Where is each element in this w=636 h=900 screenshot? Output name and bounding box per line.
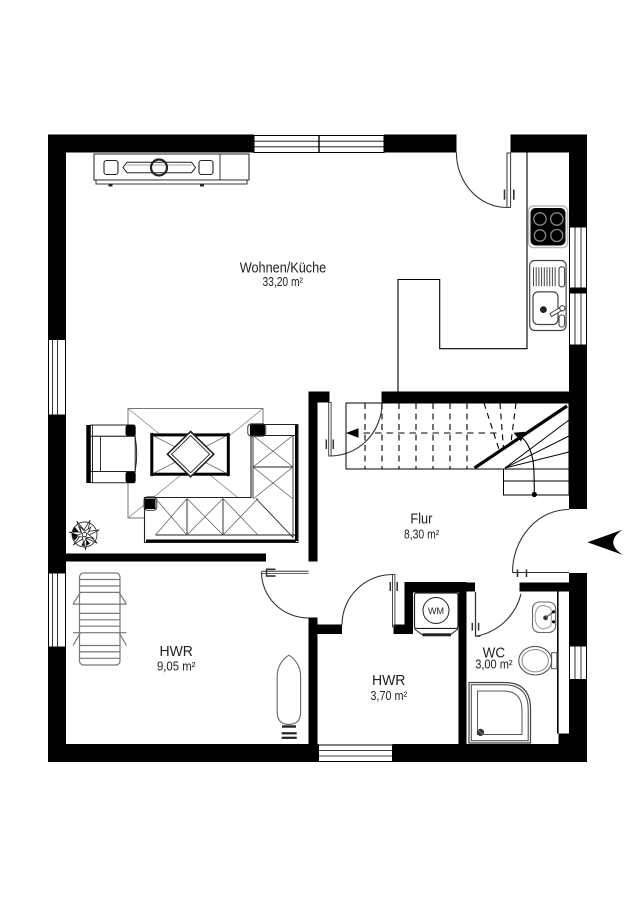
svg-text:3,00 m²: 3,00 m² <box>475 657 513 672</box>
svg-text:HWR: HWR <box>159 643 193 660</box>
svg-text:33,20 m²: 33,20 m² <box>262 274 303 289</box>
svg-text:Flur: Flur <box>410 511 432 528</box>
svg-text:HWR: HWR <box>372 672 406 689</box>
svg-text:9,05 m²: 9,05 m² <box>157 659 196 674</box>
svg-text:8,30 m²: 8,30 m² <box>404 527 440 542</box>
svg-text:3,70 m²: 3,70 m² <box>370 688 407 703</box>
svg-text:WM: WM <box>428 606 444 616</box>
